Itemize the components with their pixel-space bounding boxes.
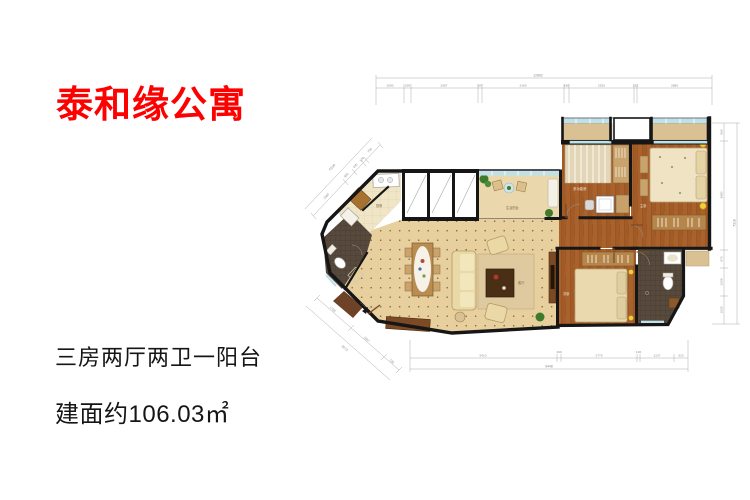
second-label: 次卧 xyxy=(563,291,570,296)
dim-top-total: 12862 xyxy=(533,74,543,78)
page-title: 泰和缘公寓 xyxy=(56,74,246,128)
svg-text:1029: 1029 xyxy=(720,306,724,313)
svg-text:1237: 1237 xyxy=(654,354,661,358)
desk xyxy=(596,196,614,213)
svg-text:700: 700 xyxy=(367,147,374,154)
svg-text:122: 122 xyxy=(633,84,638,88)
svg-text:2880: 2880 xyxy=(671,84,678,88)
svg-text:730: 730 xyxy=(388,358,395,365)
layout-text: 三房两厅两卫一阳台 xyxy=(55,340,262,372)
svg-text:239: 239 xyxy=(405,84,410,88)
living-window xyxy=(402,169,479,221)
plant xyxy=(545,209,553,217)
dim-bldiag-total: 4073 xyxy=(340,344,348,352)
balcony-glass xyxy=(479,170,560,176)
dim-right-total: 7318 xyxy=(733,219,737,227)
hall-floor xyxy=(559,218,631,248)
svg-text:2779: 2779 xyxy=(596,354,603,358)
balcony-label: 生活阳台 xyxy=(506,205,519,210)
svg-text:167: 167 xyxy=(477,84,482,88)
svg-text:3160: 3160 xyxy=(520,84,527,88)
bath2-bay xyxy=(686,251,709,266)
svg-text:1090: 1090 xyxy=(387,84,394,88)
floorplan-drawing: 厨房 生活阳台 客厅 多功能房 主卧 次卧 12862 1090 239 258… xyxy=(300,55,750,395)
second-furniture xyxy=(575,252,634,322)
lamp xyxy=(629,316,634,321)
area-text: 建面约106.03㎡ xyxy=(55,394,229,429)
multi-wardrobe xyxy=(613,145,629,183)
dining-table xyxy=(405,243,440,296)
dim-bottom-total: 9448 xyxy=(545,365,553,369)
svg-text:1657: 1657 xyxy=(363,335,371,343)
bay-windows xyxy=(561,118,711,140)
kitchen-label: 厨房 xyxy=(376,203,382,208)
svg-text:120: 120 xyxy=(636,350,641,354)
desk-chair xyxy=(585,200,594,210)
svg-text:430: 430 xyxy=(352,162,359,169)
lamp xyxy=(629,270,634,275)
living-label: 客厅 xyxy=(518,280,525,285)
svg-text:2587: 2587 xyxy=(441,84,448,88)
svg-text:180: 180 xyxy=(564,84,569,88)
svg-text:3980: 3980 xyxy=(720,191,724,198)
multi-label: 多功能房 xyxy=(573,186,587,191)
dim-leftdiag-total: 6510 xyxy=(328,163,336,171)
dim-right: 660 3980 670 1008 1029 7318 xyxy=(712,123,740,324)
svg-text:670: 670 xyxy=(720,256,724,261)
plant xyxy=(536,313,545,322)
dim-bottom: 5410 160 2779 120 1237 523 9448 xyxy=(410,340,688,372)
master-label: 主卧 xyxy=(640,203,647,208)
svg-text:2520: 2520 xyxy=(598,84,605,88)
svg-text:660: 660 xyxy=(720,129,724,134)
svg-text:523: 523 xyxy=(678,354,683,358)
svg-text:5410: 5410 xyxy=(480,354,487,358)
lamp xyxy=(700,203,706,209)
svg-text:1008: 1008 xyxy=(720,278,724,285)
master-wardrobe xyxy=(652,215,706,230)
svg-text:450: 450 xyxy=(343,172,350,179)
flyer-page: 泰和缘公寓 xyxy=(0,0,750,500)
svg-text:160: 160 xyxy=(556,350,561,354)
dim-top: 12862 1090 239 2587 167 3160 180 2520 12… xyxy=(376,74,712,106)
